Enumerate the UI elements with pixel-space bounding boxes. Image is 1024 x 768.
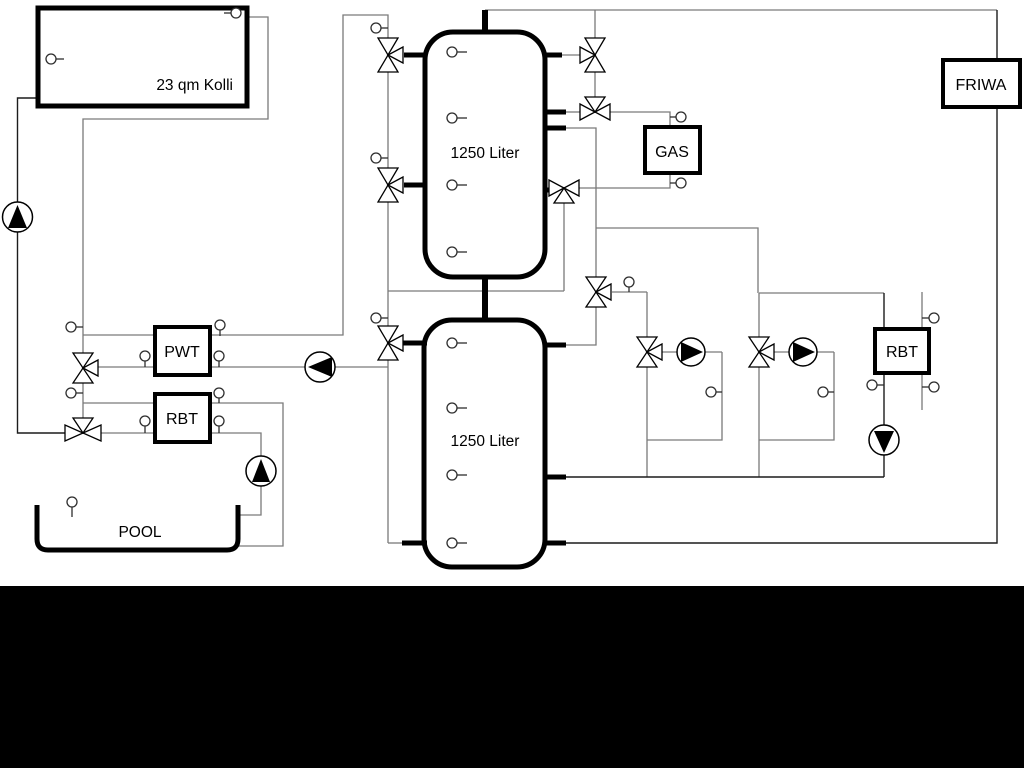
schematic-canvas: 23 qm Kolli 1250 Liter 1250 Liter PWT RB… bbox=[0, 0, 1024, 768]
pool-label: POOL bbox=[118, 524, 161, 541]
sensor-rbt-left bbox=[140, 416, 150, 433]
sensor-distribution bbox=[624, 277, 634, 292]
friwa-label: FRIWA bbox=[956, 77, 1007, 94]
sensor-group1-loop bbox=[706, 387, 722, 397]
pump-rbt-right bbox=[869, 425, 899, 455]
valve-tank1-top-right bbox=[580, 38, 605, 72]
sensor-rbt-right bbox=[214, 416, 224, 433]
pump-pwt-primary bbox=[305, 352, 335, 382]
tank-bottom-label: 1250 Liter bbox=[451, 433, 520, 450]
sensor-rbtright-bottom bbox=[922, 382, 939, 392]
pump-group2 bbox=[789, 338, 817, 366]
valve-tank1-mid-left bbox=[378, 168, 403, 202]
pipe-gas-top bbox=[610, 112, 670, 127]
rbt-right-label: RBT bbox=[886, 344, 918, 361]
valve-distribution bbox=[586, 277, 611, 307]
sensor-column-top bbox=[371, 23, 388, 33]
sensor-rbt-topright bbox=[214, 388, 224, 403]
pipe-pool-feed bbox=[101, 433, 261, 515]
valve-tank2-left bbox=[378, 326, 403, 360]
rbt-left-label: RBT bbox=[166, 411, 198, 428]
valve-pool-mixing bbox=[65, 418, 101, 441]
sensor-pool bbox=[67, 497, 77, 517]
pump-pool bbox=[246, 456, 276, 486]
pipe-collector-return bbox=[18, 98, 66, 433]
pump-collector bbox=[3, 202, 33, 232]
sensor-column-low bbox=[371, 313, 388, 323]
valve-group1-mixing bbox=[637, 337, 662, 367]
collector-label: 23 qm Kolli bbox=[156, 77, 233, 94]
pipe-branch-228 bbox=[596, 228, 758, 293]
sensor-supply-line bbox=[66, 322, 83, 332]
pipe-gas-bottom bbox=[579, 173, 670, 188]
sensor-pwt-topright bbox=[215, 320, 225, 336]
sensor-pwt-right bbox=[214, 351, 224, 367]
sensor-pwt-left bbox=[140, 351, 150, 367]
pipe-friwa-cold bbox=[566, 10, 997, 543]
valve-group2-mixing bbox=[749, 337, 774, 367]
valve-tank1-top-left bbox=[378, 38, 403, 72]
pipe-distvalve-to-tank2 bbox=[566, 307, 596, 345]
sensor-group2-loop bbox=[818, 387, 834, 397]
tank-top-label: 1250 Liter bbox=[451, 145, 520, 162]
sensor-gas-top bbox=[670, 112, 686, 122]
sensor-column-mid bbox=[371, 153, 388, 163]
valve-gas-supply bbox=[580, 97, 610, 120]
pwt-label: PWT bbox=[164, 344, 200, 361]
bottom-black-band bbox=[0, 586, 1024, 768]
sensor-rbtright-left bbox=[867, 380, 884, 390]
pump-group1 bbox=[677, 338, 705, 366]
sensor-gas-bottom bbox=[670, 178, 686, 188]
valve-gas-return bbox=[549, 180, 579, 203]
valve-pwt-mixing bbox=[73, 353, 98, 383]
sensor-rbtright-top bbox=[922, 313, 939, 323]
gas-label: GAS bbox=[655, 144, 689, 161]
sensor-return-line bbox=[66, 388, 83, 398]
hydraulic-schematic: 23 qm Kolli 1250 Liter 1250 Liter PWT RB… bbox=[0, 0, 1024, 768]
